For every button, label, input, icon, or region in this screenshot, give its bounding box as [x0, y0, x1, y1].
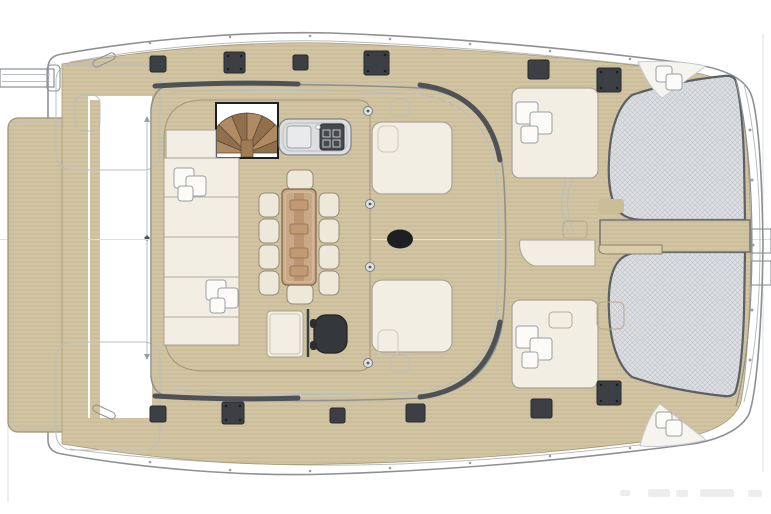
davit-arm [0, 65, 60, 91]
deck-hatch [528, 60, 549, 79]
deck-plan-canvas [0, 0, 771, 514]
sun-pad-port [512, 88, 598, 178]
sun-pad-starboard [512, 300, 598, 388]
deck-hatch [531, 399, 552, 418]
deck-hatch [330, 408, 345, 423]
deck-hatch [150, 56, 166, 72]
windlass-handle [599, 245, 662, 254]
watermark [620, 489, 762, 497]
deck-hatch [293, 55, 308, 70]
dining-table [282, 189, 316, 285]
bowsprit-bracket [751, 229, 771, 285]
salon-bench [164, 130, 239, 345]
office-chair [310, 315, 347, 353]
deck-hatch [150, 406, 166, 422]
helm-table-oval [387, 230, 413, 249]
trampoline-starboard [609, 252, 745, 396]
galley-worktop [287, 126, 311, 148]
spiral-staircase [207, 103, 287, 158]
desk [267, 309, 308, 357]
deck-plan-drawing [0, 0, 771, 514]
deck-hatch [406, 404, 425, 422]
galley-counter [279, 119, 351, 155]
trampoline-port [609, 76, 745, 220]
